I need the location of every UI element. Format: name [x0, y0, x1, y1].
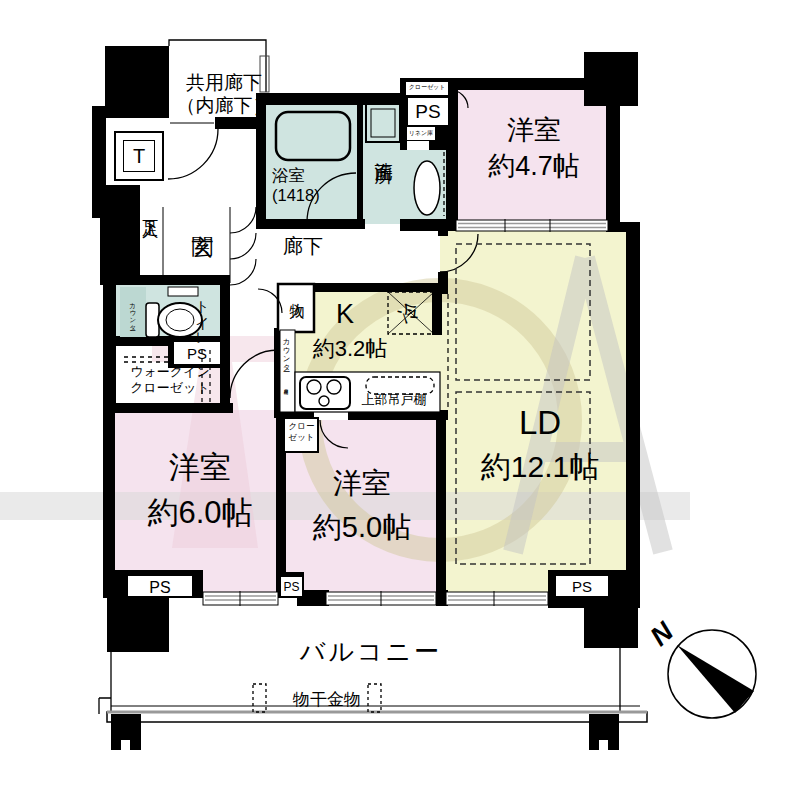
entrance-door-arc: [168, 129, 218, 179]
sink-icon: [414, 161, 440, 215]
stove-icon: [300, 377, 350, 409]
compass-icon: [668, 630, 756, 718]
room-ld-label: LD 約12.1帖: [460, 400, 620, 488]
ps-label-bottom-middle: PS: [281, 580, 302, 594]
room-western-4-7-label: 洋室 約4.7帖: [460, 112, 608, 185]
ps-label-ld: PS: [556, 578, 608, 596]
window-partition-47-ld: [456, 219, 608, 232]
washroom-label: 洗面所: [372, 148, 394, 154]
linen-label: リネン庫: [407, 130, 435, 137]
window-ld: [446, 591, 548, 606]
toilet-label: トイレ: [194, 291, 211, 339]
room-fill-washroom: [362, 98, 402, 224]
storage-box: [278, 284, 314, 332]
trunk-room-label: T: [123, 140, 155, 172]
closet-small-label: クロー ゼット: [285, 421, 318, 443]
ps-label-bottom-left: PS: [128, 578, 192, 597]
closet-label: クローゼット: [406, 84, 448, 91]
room-western-5-0-label: 洋室 約5.0帖: [288, 462, 436, 549]
walkin-closet-label: ウォークイン クローゼット: [114, 364, 226, 395]
ps-label-toilet: PS: [174, 345, 220, 363]
shoe-cabinet-door-arc: [230, 233, 256, 259]
floorplan: 共用廊下 （内廊下） T 浴室 (1418) 洗面所 クローゼット PS リネン…: [0, 0, 800, 800]
room-western-6-0-label: 洋室 約6.0帖: [120, 446, 280, 536]
kitchen-size-label: 約3.2帖: [290, 336, 410, 362]
kitchen-name-label: K: [310, 298, 380, 330]
upper-cabinet-label: 上部吊戸棚: [350, 392, 438, 408]
window-west60: [203, 591, 278, 606]
ps-label-top: PS: [408, 101, 448, 124]
shoe-cabinet-door-arc: [230, 207, 256, 233]
balcony-label: バルコニー: [296, 636, 446, 666]
bath-label: 浴室 (1418): [272, 166, 334, 206]
common-corridor-label: 共用廊下 （内廊下）: [176, 72, 272, 118]
window-west50: [326, 591, 436, 606]
kitchen-counter-label: カウンター: [282, 333, 291, 367]
shoe-cabinet-label: 下足入: [141, 207, 160, 210]
laundry-pole-mark: [253, 684, 266, 712]
trunk-room-box: T: [114, 131, 164, 181]
entrance-label: 玄関: [189, 217, 215, 221]
laundry-hardware-label: 物干金物: [282, 690, 372, 710]
toilet-counter-label: カウンター: [129, 298, 137, 328]
hallway-label: 廊下: [255, 234, 351, 258]
shoe-cabinet-door-arc: [230, 259, 256, 285]
